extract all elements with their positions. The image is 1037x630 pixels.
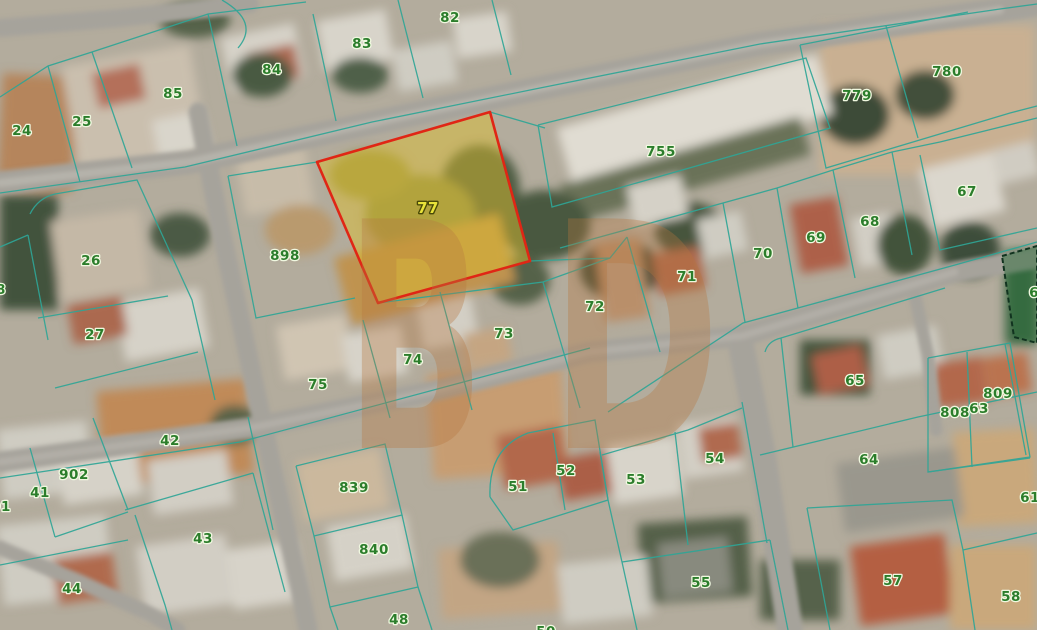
watermark-letter-B: B — [345, 157, 485, 523]
parcel-label-66: 66 — [1029, 285, 1037, 301]
parcel-label-82: 82 — [440, 10, 460, 26]
parcel-label-57: 57 — [883, 573, 903, 589]
parcel-label-85: 85 — [163, 86, 183, 102]
parcel-label-63: 63 — [969, 401, 989, 417]
parcel-label-53: 53 — [626, 472, 646, 488]
parcel-label-809: 809 — [983, 386, 1013, 402]
parcel-label-54: 54 — [705, 451, 725, 467]
parcel-label-61: 61 — [1020, 490, 1037, 506]
parcel-label-779: 779 — [842, 88, 872, 104]
parcel-label-68: 68 — [860, 214, 880, 230]
parcel-label-73: 73 — [494, 326, 514, 342]
parcel-label-808: 808 — [940, 405, 970, 421]
parcel-label-74: 74 — [403, 352, 423, 368]
parcel-label-27: 27 — [85, 327, 105, 343]
parcel-label-839: 839 — [339, 480, 369, 496]
parcel-label-755: 755 — [646, 144, 676, 160]
parcel-label-44: 44 — [62, 581, 82, 597]
parcel-label-26: 26 — [81, 253, 101, 269]
parcel-label-840: 840 — [359, 542, 389, 558]
parcel-label-64: 64 — [859, 452, 879, 468]
parcel-label-83: 83 — [352, 36, 372, 52]
parcel-label-48: 48 — [389, 612, 409, 628]
parcel-label-52: 52 — [556, 463, 576, 479]
parcel-label-72: 72 — [585, 299, 605, 315]
parcel-label-69: 69 — [806, 230, 826, 246]
parcel-label-51: 51 — [508, 479, 528, 495]
parcel-label-67: 67 — [957, 184, 977, 200]
parcel-label-43: 43 — [193, 531, 213, 547]
parcel-label-25: 25 — [72, 114, 92, 130]
parcel-label-898: 898 — [270, 248, 300, 264]
parcel-label-55: 55 — [691, 575, 711, 591]
parcel-label-780: 780 — [932, 64, 962, 80]
parcel-label-24: 24 — [12, 123, 32, 139]
map-stage: BD 2425858483827797807556768697071728982… — [0, 0, 1037, 630]
cadastral-map[interactable]: BD 2425858483827797807556768697071728982… — [0, 0, 1037, 630]
parcel-label-41: 41 — [30, 485, 50, 501]
parcel-label-70: 70 — [753, 246, 773, 262]
parcel-label-58: 58 — [1001, 589, 1021, 605]
parcel-label-77: 77 — [417, 199, 439, 217]
parcel-label-75: 75 — [308, 377, 328, 393]
parcel-label-902: 902 — [59, 467, 89, 483]
parcel-label-50: 50 — [536, 624, 556, 630]
parcel-label-65: 65 — [845, 373, 865, 389]
parcel-label-901: 901 — [0, 499, 11, 515]
parcel-label-84: 84 — [262, 62, 282, 78]
parcel-label-28: 28 — [0, 282, 6, 298]
parcel-label-71: 71 — [677, 269, 697, 285]
parcel-label-42: 42 — [160, 433, 180, 449]
